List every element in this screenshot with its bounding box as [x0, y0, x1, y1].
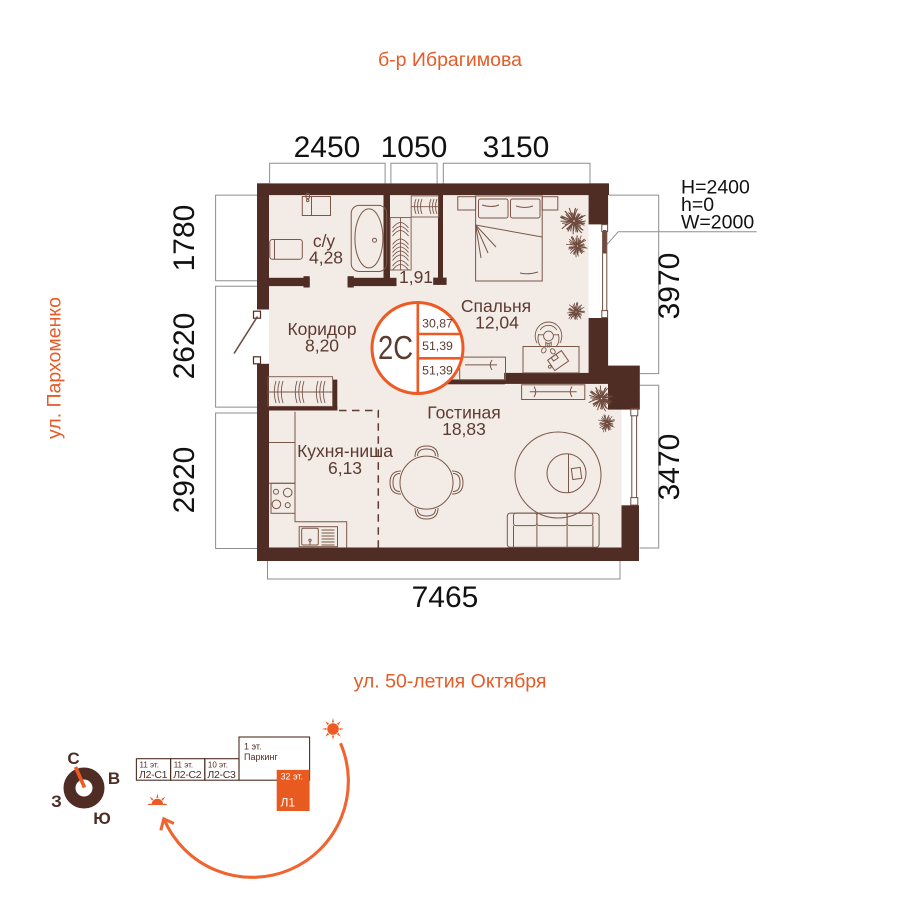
svg-text:30,87: 30,87 [422, 317, 453, 331]
svg-text:Паркинг: Паркинг [244, 752, 278, 762]
svg-text:6,13: 6,13 [328, 458, 362, 478]
svg-text:3970: 3970 [653, 253, 686, 320]
svg-text:4,28: 4,28 [309, 248, 343, 268]
svg-text:18,83: 18,83 [442, 419, 486, 439]
svg-text:8,20: 8,20 [305, 336, 339, 356]
svg-text:2С: 2С [378, 329, 413, 366]
svg-text:W=2000: W=2000 [681, 212, 754, 234]
svg-text:3470: 3470 [653, 434, 686, 501]
svg-text:б-р Ибрагимова: б-р Ибрагимова [378, 49, 522, 71]
svg-text:32 эт.: 32 эт. [281, 772, 304, 782]
svg-text:ул. Пархоменко: ул. Пархоменко [44, 297, 66, 439]
svg-text:7465: 7465 [412, 581, 479, 614]
svg-text:12,04: 12,04 [475, 313, 519, 333]
svg-text:ул. 50-летия Октября: ул. 50-летия Октября [354, 671, 547, 693]
svg-text:1050: 1050 [381, 131, 448, 164]
svg-text:51,39: 51,39 [422, 364, 453, 378]
svg-text:С: С [67, 749, 79, 768]
svg-text:3150: 3150 [483, 131, 550, 164]
svg-text:2920: 2920 [168, 447, 201, 514]
svg-text:2450: 2450 [294, 131, 361, 164]
svg-text:2620: 2620 [168, 313, 201, 380]
svg-text:Л2-С3: Л2-С3 [207, 769, 236, 781]
svg-text:Л2-С1: Л2-С1 [139, 769, 168, 781]
svg-text:Л1: Л1 [281, 796, 296, 810]
svg-text:Л2-С2: Л2-С2 [173, 769, 202, 781]
svg-text:З: З [51, 792, 62, 811]
svg-text:1 эт.: 1 эт. [244, 742, 262, 752]
svg-text:В: В [108, 769, 120, 788]
svg-text:51,39: 51,39 [422, 339, 453, 353]
svg-text:Ю: Ю [93, 809, 111, 828]
svg-text:1780: 1780 [168, 205, 201, 272]
